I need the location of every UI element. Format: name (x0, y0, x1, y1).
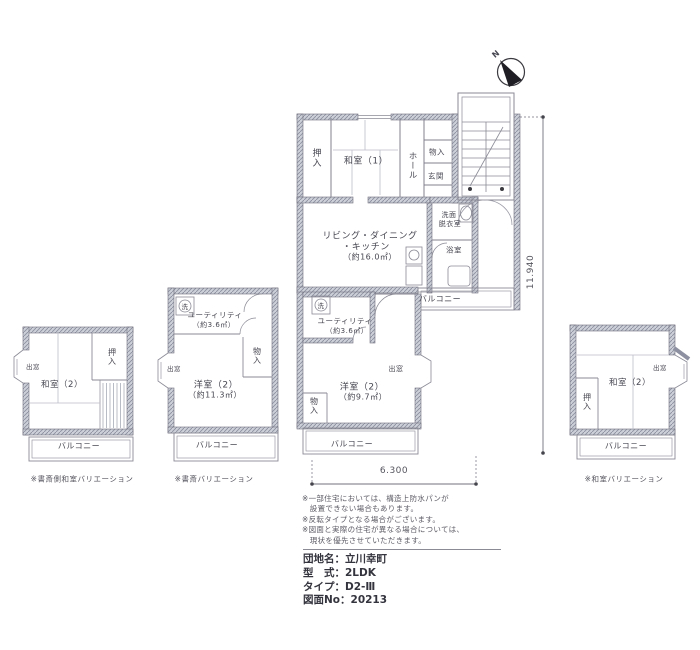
notes-block: ※一部住宅においては、構造上防水パンが 設置できない場合もあります。 ※反転タイ… (302, 494, 464, 546)
height-dimension-label: 11.940 (526, 255, 536, 290)
note-line: ※一部住宅においては、構造上防水パンが (302, 494, 464, 504)
info-value: 立川幸町 (345, 553, 387, 565)
main-balcony-label: バルコニー (419, 294, 461, 305)
main-ldk-area-label: （約16.0㎡） (343, 252, 397, 263)
var-washitsu-balcony-label: バルコニー (605, 441, 647, 452)
var-left-oshiire-label: 押入 (107, 348, 118, 366)
main-washitsu1-label: 和室（1） (344, 154, 388, 167)
info-label: タイプ： (303, 581, 345, 593)
info-label: 団地名： (303, 553, 345, 565)
lower-demado-label: 出窓 (389, 364, 404, 374)
lower-washer-label: 洗 (318, 300, 325, 310)
var-left-caption: ※書斎側和室バリエーション (31, 474, 134, 485)
info-label: 図面No： (303, 594, 351, 606)
floor-plan-page: N 押入 和室（1） ホール 物入 玄関 洗面 脱衣室 リビング・ダイニング ・… (0, 0, 700, 650)
var-left-room-label: 和室（2） (41, 378, 83, 390)
lower-room-area-label: （約9.7㎡） (339, 392, 387, 403)
info-row-zumen-no: 図面No：20213 (303, 594, 501, 608)
var-study-utility-area-label: （約3.6㎡） (193, 320, 236, 330)
var-left-demado-label: 出窓 (26, 361, 40, 371)
lower-utility-label: ユーティリティ (317, 316, 372, 327)
main-genkan-label: 玄関 (428, 171, 444, 182)
main-unit-walls (297, 114, 520, 310)
info-row-danchi: 団地名：立川幸町 (303, 553, 501, 567)
info-label: 型 式： (303, 567, 345, 579)
main-hall-label: ホール (406, 152, 418, 181)
compass-icon (498, 59, 525, 88)
stairwell (458, 93, 514, 200)
main-senmen-label-2: 脱衣室 (439, 219, 462, 229)
var-study-balcony-label: バルコニー (196, 440, 238, 451)
info-value: 2LDK (345, 567, 376, 579)
note-line: 現状を優先させていただきます。 (302, 536, 464, 546)
var-study-room-area-label: （約11.3㎡） (188, 390, 242, 401)
var-washitsu-oshiire-label: 押入 (582, 393, 593, 411)
main-unit-partitions (331, 118, 472, 294)
main-bath-label: 浴室 (446, 245, 462, 256)
info-row-type: タイプ：D2-Ⅲ (303, 581, 501, 595)
var-washitsu-caption: ※和室バリエーション (585, 474, 664, 485)
lower-balcony-label: バルコニー (331, 439, 373, 450)
lower-monoire-label: 物入 (309, 397, 320, 415)
info-value: 20213 (351, 594, 388, 606)
var-washitsu-demado-label: 出窓 (653, 362, 667, 372)
var-study-utility-label: ユーティリティ (187, 310, 242, 321)
main-monoire-label: 物入 (429, 147, 445, 158)
note-line: ※図面と実際の住宅が異なる場合については、 (302, 525, 464, 535)
var-study-demado-label: 出窓 (167, 363, 181, 373)
lower-utility-area-label: （約3.6㎡） (326, 326, 369, 336)
washroom-fixtures (406, 204, 473, 286)
width-dimension-label: 6.300 (380, 466, 408, 476)
var-left-balcony-label: バルコニー (58, 441, 100, 452)
var-study-caption: ※書斎バリエーション (175, 474, 254, 485)
info-row-katashiki: 型 式：2LDK (303, 567, 501, 581)
var-study-monoire-label: 物入 (252, 347, 263, 365)
main-oshiire-label: 押入 (310, 148, 323, 168)
note-line: 設置できない場合もあります。 (302, 504, 464, 514)
note-line: ※反転タイプとなる場合がございます。 (302, 515, 464, 525)
info-value: D2-Ⅲ (345, 581, 375, 593)
var-washitsu-room-label: 和室（2） (609, 376, 651, 388)
title-block: 団地名：立川幸町 型 式：2LDK タイプ：D2-Ⅲ 図面No：20213 (303, 549, 501, 608)
